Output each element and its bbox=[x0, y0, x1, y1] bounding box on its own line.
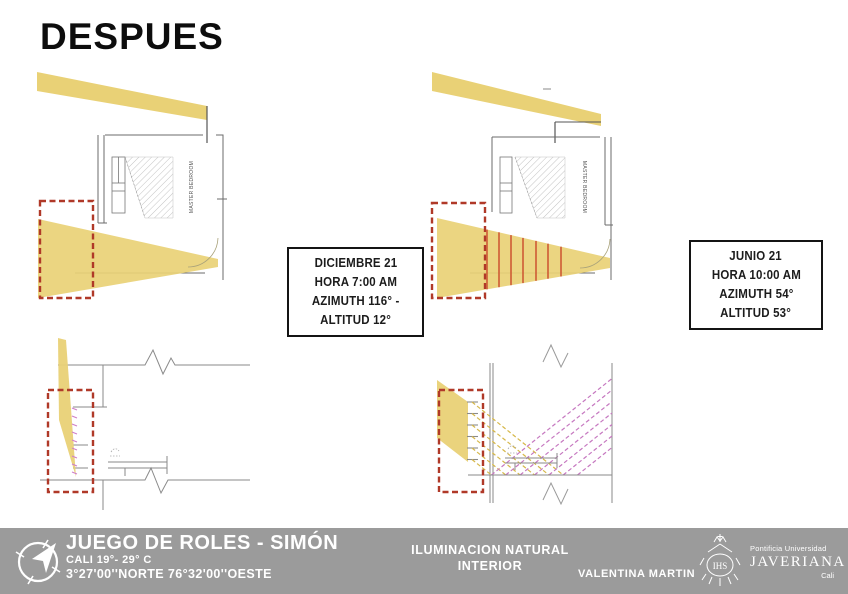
info-line: AZIMUTH 116° - bbox=[312, 292, 400, 311]
wall-lines bbox=[73, 365, 107, 510]
info-line: AZIMUTH 54° bbox=[719, 285, 793, 304]
project-coordinates: 3°27'00''NORTE 76°32'00''OESTE bbox=[66, 567, 338, 582]
slide: DESPUES bbox=[0, 0, 848, 594]
light-beam bbox=[437, 218, 610, 298]
bed bbox=[108, 449, 167, 476]
closet bbox=[500, 157, 512, 213]
info-line: DICIEMBRE 21 bbox=[314, 254, 397, 273]
room-label: MASTER BEDROOM bbox=[581, 161, 587, 213]
university-crest-icon: IHS bbox=[692, 532, 748, 590]
footer-bar: JUEGO DE ROLES - SIMÓN CALI 19°- 29° C 3… bbox=[0, 528, 848, 594]
shadow-hatch bbox=[125, 157, 173, 218]
closet bbox=[112, 157, 125, 213]
break-symbol-bottom bbox=[543, 483, 568, 504]
break-symbol-top bbox=[543, 345, 568, 367]
light-beam bbox=[437, 380, 468, 462]
light-beam bbox=[38, 219, 218, 298]
info-line: JUNIO 21 bbox=[730, 247, 783, 266]
university-city: Cali bbox=[750, 571, 834, 580]
ceiling-line bbox=[58, 350, 250, 374]
plan-december-drawing: MASTER BEDROOM bbox=[30, 62, 250, 312]
incident-rays bbox=[472, 402, 563, 475]
page-title: DESPUES bbox=[40, 16, 224, 58]
university-name: JAVERIANA bbox=[750, 553, 834, 571]
crest-monogram: IHS bbox=[713, 561, 728, 571]
section-december-drawing bbox=[35, 332, 255, 522]
plan-june-panel: MASTER BEDROOM bbox=[425, 62, 650, 312]
sun-band bbox=[432, 72, 601, 143]
info-line: ALTITUD 12° bbox=[320, 311, 391, 330]
course-title-line1: ILUMINACION NATURAL bbox=[400, 542, 580, 558]
room-label: MASTER BEDROOM bbox=[189, 161, 195, 213]
course-title-line2: INTERIOR bbox=[400, 558, 580, 574]
section-december-panel bbox=[35, 332, 255, 522]
louver-lines bbox=[467, 402, 478, 460]
plan-december-panel: MASTER BEDROOM bbox=[30, 62, 250, 312]
plan-june-drawing: MASTER BEDROOM bbox=[425, 62, 650, 312]
info-box-december: DICIEMBRE 21 HORA 7:00 AM AZIMUTH 116° -… bbox=[287, 247, 424, 337]
reflected-rays bbox=[491, 379, 612, 476]
section-june-drawing bbox=[425, 332, 655, 522]
info-box-june: JUNIO 21 HORA 10:00 AM AZIMUTH 54° ALTIT… bbox=[689, 240, 823, 330]
info-line: HORA 10:00 AM bbox=[711, 266, 800, 285]
floor-line bbox=[40, 468, 250, 493]
compass-icon bbox=[12, 536, 64, 586]
project-climate: CALI 19°- 29° C bbox=[66, 554, 338, 567]
university-pre: Pontificia Universidad bbox=[750, 544, 834, 553]
info-line: HORA 7:00 AM bbox=[314, 273, 397, 292]
info-line: ALTITUD 53° bbox=[721, 304, 792, 323]
shadow-hatch bbox=[515, 157, 565, 218]
project-title: JUEGO DE ROLES - SIMÓN bbox=[66, 532, 338, 554]
section-june-panel bbox=[425, 332, 655, 522]
author-name: VALENTINA MARTIN bbox=[578, 568, 695, 580]
sun-band bbox=[37, 72, 207, 143]
